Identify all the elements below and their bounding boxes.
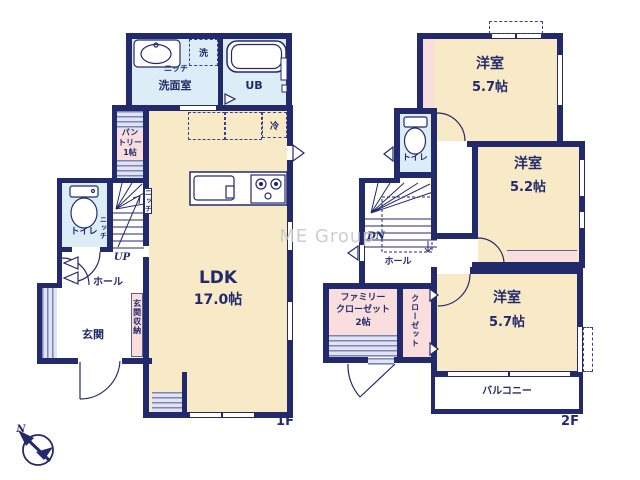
bedroom-south-label: 洋室 xyxy=(457,290,557,307)
wall xyxy=(287,160,293,222)
entrance-storage-label: 玄関収納 xyxy=(132,299,142,335)
toilet-label: トイレ xyxy=(395,153,435,163)
family-closet-label: ファミリー xyxy=(324,293,402,304)
wall xyxy=(323,283,437,289)
fridge-space: 冷 xyxy=(262,112,287,138)
bedroom-north-floor xyxy=(437,108,557,141)
door-arc xyxy=(348,364,395,397)
ldk-label: LDK xyxy=(168,268,268,288)
wall xyxy=(437,233,478,239)
wall xyxy=(287,250,293,302)
bedroom-north-label: 洋室 xyxy=(445,56,535,73)
wall xyxy=(359,178,400,183)
washer-label: 洗 xyxy=(199,46,208,59)
niche-label: ニッチ xyxy=(158,64,194,74)
pantry-label: パン xyxy=(108,128,152,138)
wall xyxy=(287,340,293,418)
wall xyxy=(143,257,149,412)
wall xyxy=(218,39,223,105)
bedroom-south-size: 5.7帖 xyxy=(457,315,557,331)
sliding-door xyxy=(180,105,216,111)
family-closet-label: クローゼット xyxy=(324,305,402,316)
stairs-up xyxy=(113,183,144,248)
shutter-marker xyxy=(348,246,358,260)
wall xyxy=(287,105,293,146)
wall xyxy=(470,267,583,274)
back-door-opening xyxy=(287,146,293,160)
wall xyxy=(122,358,152,364)
toilet-label: トイレ xyxy=(64,227,104,238)
wall xyxy=(37,283,42,364)
ldk-size-label: 17.0帖 xyxy=(168,292,268,309)
unit-bath-label: UB xyxy=(209,79,299,92)
eaves-dashed-outline xyxy=(489,21,543,34)
stairs-up-label: UP xyxy=(104,252,140,264)
wall xyxy=(579,141,585,160)
ldk-floor xyxy=(149,111,287,412)
fridge-label: 冷 xyxy=(270,119,279,132)
wall xyxy=(57,178,62,252)
wall xyxy=(57,178,113,183)
washer-space: 洗 xyxy=(189,39,218,66)
balcony-label: バルコニー xyxy=(457,386,557,398)
window xyxy=(557,55,563,105)
wall xyxy=(417,33,423,108)
back-door-marker xyxy=(293,145,304,161)
watermark: ME Group xyxy=(272,226,382,247)
window-mullion xyxy=(221,412,223,418)
hall-label: ホール xyxy=(83,277,133,289)
bedroom-east-size: 5.2帖 xyxy=(483,180,573,196)
ldk-step-hatch xyxy=(152,392,182,412)
wall xyxy=(37,358,78,364)
cupboard-space xyxy=(188,112,225,140)
bedroom-east-closet-strip xyxy=(507,250,577,262)
pantry-size-label: 1帖 xyxy=(108,148,152,158)
niche-label: ニッチ xyxy=(144,189,152,213)
window xyxy=(579,160,585,196)
wall xyxy=(431,108,437,240)
cupboard-space xyxy=(225,112,262,140)
bedroom-north-floor xyxy=(423,39,557,108)
unit-bath-floor xyxy=(223,39,286,105)
pantry-shelf-hatch xyxy=(117,160,143,178)
toilet-door-marker xyxy=(384,147,393,161)
washroom-label: 洗面室 xyxy=(130,79,220,92)
toilet2-floor xyxy=(400,114,431,172)
wall xyxy=(286,33,292,111)
closet-label: クローゼット xyxy=(410,294,420,348)
porch-step-hatch xyxy=(42,288,57,358)
wall xyxy=(182,372,187,412)
wall xyxy=(107,178,113,252)
compass-north-label: N xyxy=(14,424,28,436)
family-closet-hatch xyxy=(329,335,397,357)
window-mullion xyxy=(508,371,510,377)
wall xyxy=(472,147,478,238)
bedroom-east-label: 洋室 xyxy=(483,156,573,173)
wall xyxy=(394,108,400,178)
hall-label: ホール xyxy=(373,257,423,268)
pantry-label: トリー xyxy=(108,138,152,148)
closet-door-marker xyxy=(64,272,78,284)
bedroom-north-closet-strip xyxy=(423,39,434,108)
floor2-label: 2F xyxy=(553,414,587,430)
window xyxy=(287,302,293,340)
wall xyxy=(323,357,368,363)
family-closet-size: 2帖 xyxy=(324,318,402,329)
wall xyxy=(579,196,585,212)
bedroom-north-size: 5.7帖 xyxy=(445,80,535,96)
window xyxy=(579,212,585,228)
entrance-door-arc xyxy=(80,361,120,399)
entrance-label: 玄関 xyxy=(68,328,118,341)
wall xyxy=(467,141,563,147)
window xyxy=(359,245,365,261)
closet-door-marker xyxy=(64,257,78,269)
wall xyxy=(577,267,583,327)
wall xyxy=(126,33,132,111)
family-closet-hatch xyxy=(368,358,394,365)
floor-plan: 洗 冷 xyxy=(0,0,640,480)
floor1-label: 1F xyxy=(268,414,302,430)
eaves-dashed-outline xyxy=(583,327,593,372)
